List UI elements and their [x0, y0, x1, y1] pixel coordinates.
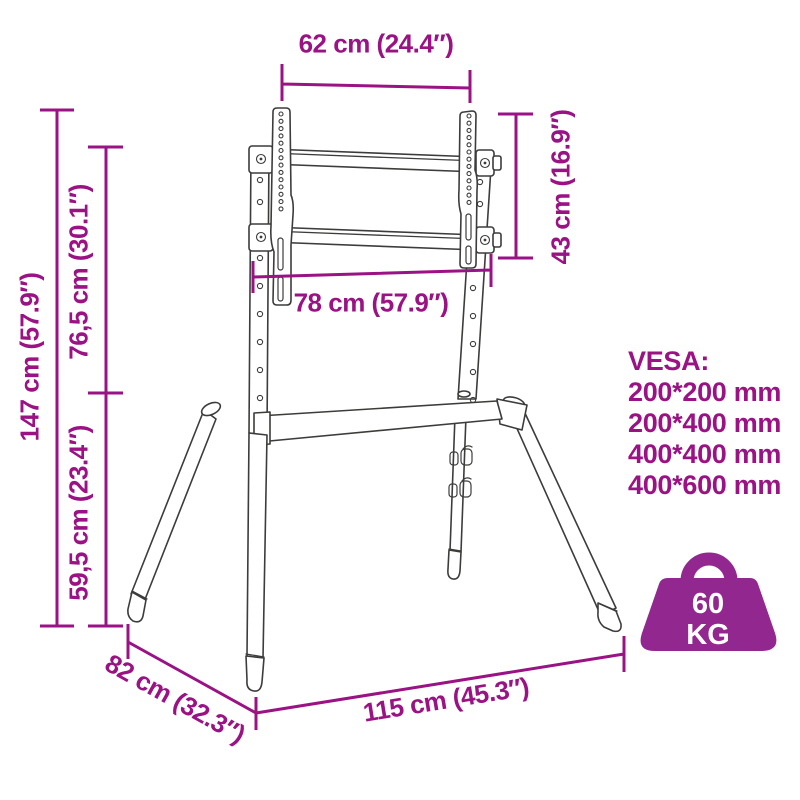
dim-label-upper-section-height: 76,5 cm (30.1″) — [64, 184, 95, 360]
weight-value: 60 — [692, 588, 724, 620]
dim-label-frame-width: 78 cm (57.9″) — [294, 288, 449, 319]
dim-line-bracket-height — [498, 114, 533, 258]
front-center-leg — [246, 433, 267, 691]
dim-line-mount-width — [282, 64, 470, 103]
vesa-size-item: 200*400 mm — [628, 408, 781, 439]
dim-label-bracket-height: 43 cm (16.9″) — [546, 110, 577, 265]
weight-capacity-icon: 60 KG — [641, 559, 777, 651]
vesa-size-item: 400*400 mm — [628, 439, 781, 470]
dim-label-lower-section-height: 59,5 cm (23.4″) — [64, 425, 95, 601]
dim-label-total-height: 147 cm (57.9″) — [15, 273, 46, 442]
back-center-leg — [448, 416, 472, 579]
base-beam — [254, 399, 527, 445]
weight-handle — [687, 559, 731, 581]
upper-crossbar — [270, 149, 478, 172]
vesa-size-item: 400*600 mm — [628, 470, 781, 501]
dimension-diagram: 60 KG 62 cm (24.4″) 147 cm (57.9″) 76,5 … — [0, 0, 800, 800]
vesa-plate-right — [459, 111, 478, 268]
vesa-info: VESA: 200*200 mm 200*400 mm 400*400 mm 4… — [628, 346, 781, 501]
lower-crossbar — [270, 227, 478, 250]
vesa-size-item: 200*200 mm — [628, 377, 781, 408]
dim-label-mount-width: 62 cm (24.4″) — [299, 29, 454, 60]
weight-unit: KG — [686, 619, 730, 651]
front-left-leg — [128, 400, 223, 622]
vesa-heading: VESA: — [628, 346, 781, 377]
